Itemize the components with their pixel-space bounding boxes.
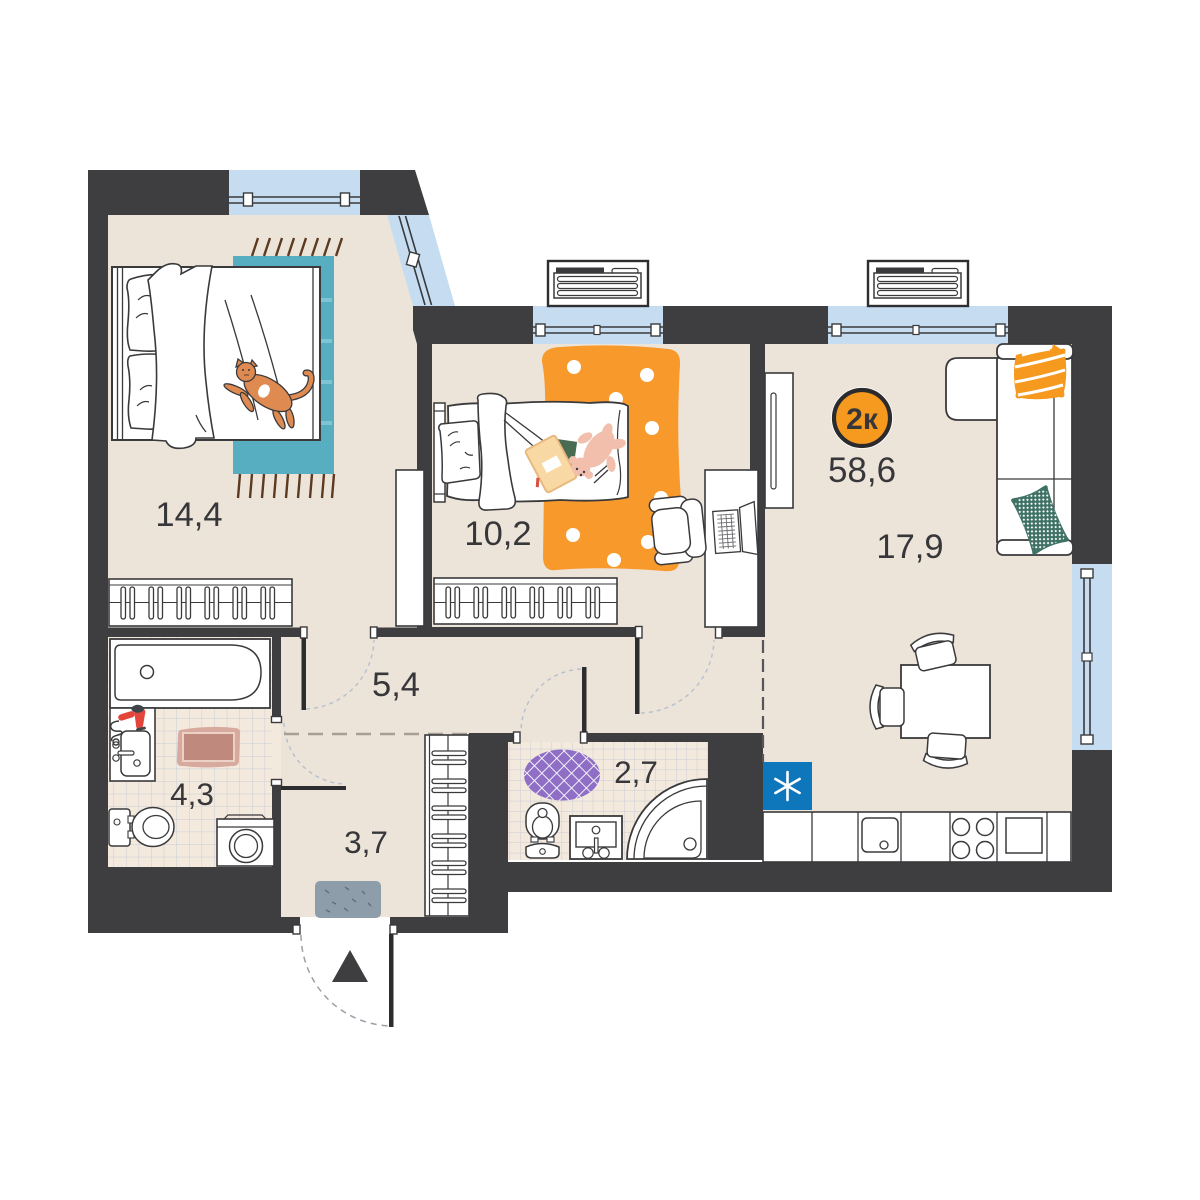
- svg-text:4,3: 4,3: [170, 776, 214, 812]
- svg-text:10,2: 10,2: [464, 515, 531, 553]
- svg-text:17,9: 17,9: [876, 528, 943, 566]
- svg-text:3,7: 3,7: [344, 824, 388, 860]
- svg-text:58,6: 58,6: [828, 451, 896, 490]
- svg-text:14,4: 14,4: [155, 496, 222, 534]
- svg-text:2,7: 2,7: [614, 754, 658, 790]
- svg-text:5,4: 5,4: [372, 666, 420, 704]
- svg-text:2к: 2к: [846, 403, 879, 436]
